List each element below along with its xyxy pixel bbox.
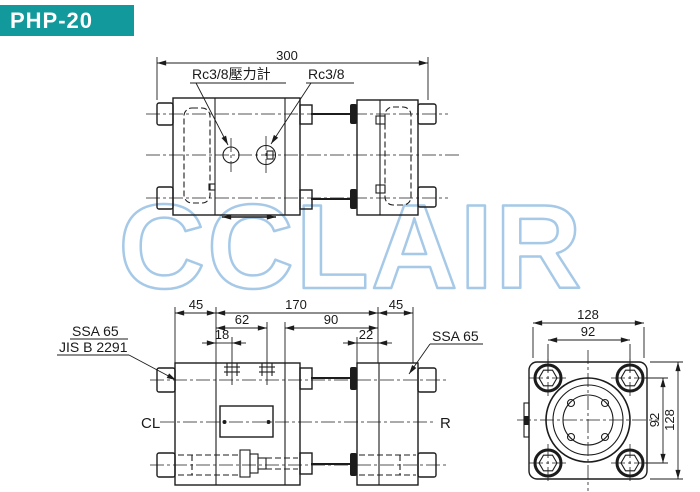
nameplate [220,406,273,437]
dim-flange-height: 128 [662,409,677,431]
coupling-bottom [350,189,357,209]
technical-drawing: CCLAIR 300 Rc3/8壓力計 Rc3/8 [0,0,700,492]
dim-right-flange: 45 [389,297,403,312]
top-overall-width-dim: 300 [276,48,298,63]
pressure-gauge-port-label: Rc3/8壓力計 [192,66,271,82]
right-port-label: R [440,415,451,432]
coupling-top [350,104,357,124]
centerline-label: CL [141,415,160,432]
dim-port-offset-right: 22 [359,327,373,342]
flange-standard-left-label: JIS B 2291 [59,339,128,355]
dim-bolt-spacing-h: 92 [581,324,595,339]
hidden-relief-valve [178,450,298,477]
side-view: 128 92 92 128 [517,307,683,491]
flange-spec-right-label: SSA 65 [432,328,479,344]
dim-port-offset-left: 18 [215,327,229,342]
dim-port-span: 62 [235,312,249,327]
port-label: Rc3/8 [308,66,345,82]
dim-body-length: 170 [285,297,307,312]
catalog-page: PHP-20 CCLAIR 300 Rc3/8壓力計 Rc3/8 [0,0,700,492]
dim-flange-width: 128 [577,307,599,322]
dim-left-flange: 45 [189,297,203,312]
front-view: 45 170 45 62 90 18 22 SSA 65 JIS B 2291 [57,297,483,485]
flange-spec-left-label: SSA 65 [72,323,119,339]
dim-right-section: 90 [324,312,338,327]
